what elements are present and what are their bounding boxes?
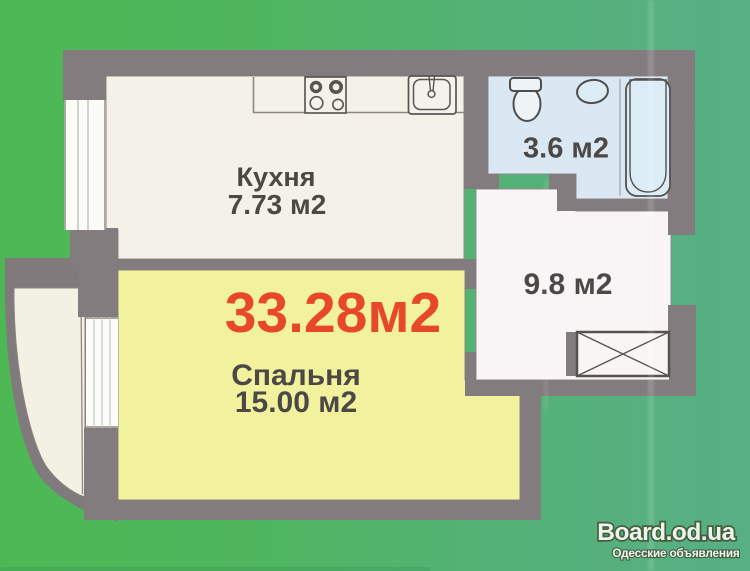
svg-text:Одесские объявления: Одесские объявления	[612, 546, 739, 560]
svg-text:3.6 м2: 3.6 м2	[523, 133, 609, 165]
svg-text:Кухня: Кухня	[237, 162, 316, 192]
svg-text:9.8 м2: 9.8 м2	[524, 268, 613, 301]
svg-text:33.28м2: 33.28м2	[225, 281, 442, 345]
svg-text:15.00 м2: 15.00 м2	[235, 386, 357, 419]
svg-text:Board.od.ua: Board.od.ua	[597, 519, 735, 546]
svg-text:7.73 м2: 7.73 м2	[228, 189, 327, 220]
